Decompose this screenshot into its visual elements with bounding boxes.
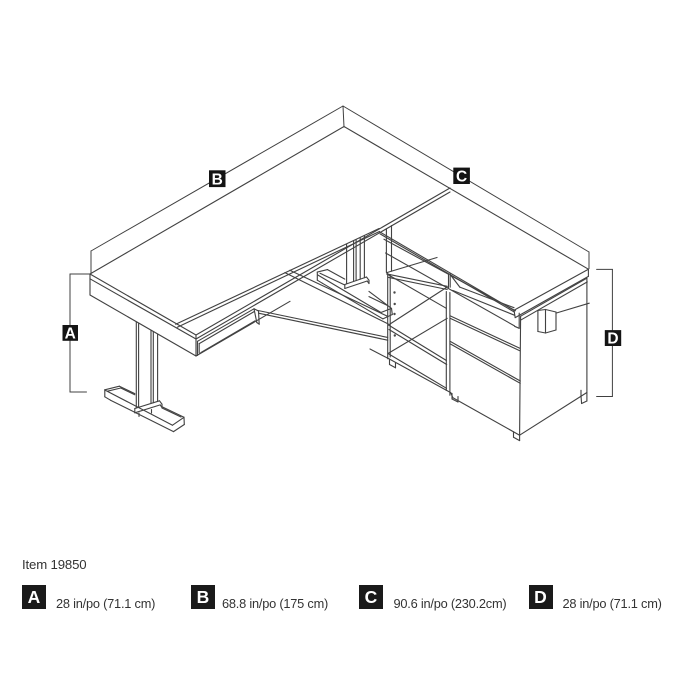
svg-text:B: B — [212, 171, 223, 188]
svg-text:D: D — [607, 331, 618, 348]
svg-text:A: A — [65, 326, 76, 343]
svg-text:C: C — [456, 168, 467, 185]
